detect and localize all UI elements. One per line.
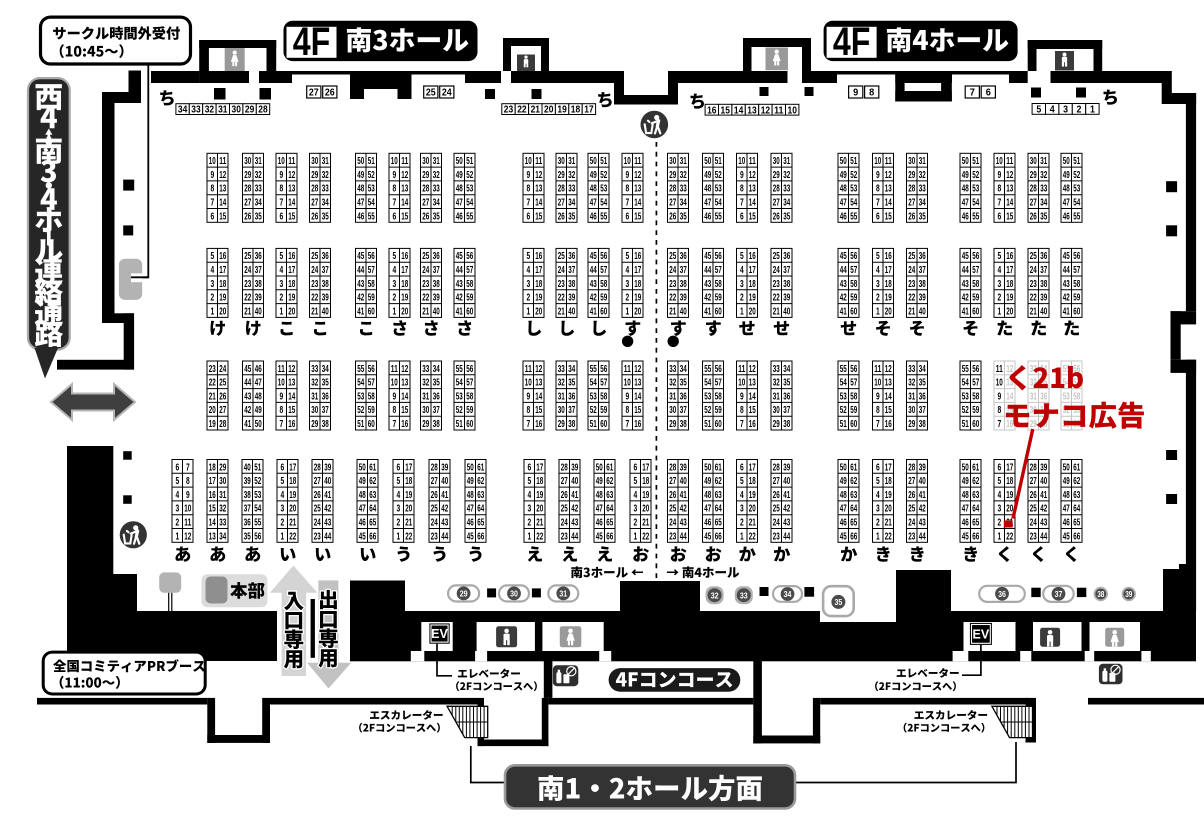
svg-text:4F: 4F <box>833 20 871 64</box>
svg-text:32: 32 <box>711 590 719 600</box>
svg-text:13: 13 <box>747 105 757 116</box>
svg-text:27: 27 <box>309 88 319 99</box>
svg-text:3: 3 <box>1063 105 1068 116</box>
svg-text:20: 20 <box>544 105 554 116</box>
svg-text:33: 33 <box>191 105 201 116</box>
svg-text:38: 38 <box>1097 590 1105 599</box>
svg-text:11: 11 <box>774 105 784 116</box>
svg-text:31: 31 <box>218 105 228 116</box>
svg-text:10: 10 <box>788 105 798 116</box>
svg-text:2: 2 <box>1077 105 1082 116</box>
svg-text:4: 4 <box>1050 105 1055 116</box>
svg-text:5: 5 <box>1036 105 1041 116</box>
svg-text:36: 36 <box>998 589 1006 599</box>
svg-text:14: 14 <box>734 105 744 116</box>
svg-text:25: 25 <box>426 88 436 99</box>
svg-text:37: 37 <box>1055 589 1063 599</box>
svg-text:33: 33 <box>740 590 748 600</box>
svg-text:30: 30 <box>232 105 242 116</box>
svg-text:34: 34 <box>784 589 792 599</box>
svg-text:17: 17 <box>584 105 594 116</box>
svg-text:12: 12 <box>761 105 771 116</box>
svg-text:EV: EV <box>431 627 448 641</box>
svg-text:34: 34 <box>178 105 188 116</box>
svg-text:9: 9 <box>853 88 858 99</box>
svg-text:16: 16 <box>707 105 717 116</box>
svg-text:24: 24 <box>442 88 452 99</box>
svg-text:21: 21 <box>531 105 541 116</box>
svg-text:28: 28 <box>258 105 268 116</box>
svg-text:32: 32 <box>205 105 215 116</box>
svg-text:29: 29 <box>460 589 468 599</box>
svg-text:8: 8 <box>869 88 874 99</box>
svg-text:4F: 4F <box>293 20 331 64</box>
svg-text:26: 26 <box>325 88 335 99</box>
svg-text:30: 30 <box>510 589 518 599</box>
svg-text:18: 18 <box>571 105 581 116</box>
svg-text:6: 6 <box>986 88 991 99</box>
svg-text:19: 19 <box>557 105 567 116</box>
svg-text:29: 29 <box>245 105 255 116</box>
svg-text:1: 1 <box>1090 105 1095 116</box>
svg-text:22: 22 <box>517 105 527 116</box>
svg-text:23: 23 <box>504 105 514 116</box>
svg-text:EV: EV <box>973 627 990 641</box>
svg-text:7: 7 <box>970 88 975 99</box>
svg-text:15: 15 <box>721 105 731 116</box>
svg-text:35: 35 <box>835 597 843 607</box>
svg-text:39: 39 <box>1125 590 1133 599</box>
svg-text:31: 31 <box>559 589 567 599</box>
